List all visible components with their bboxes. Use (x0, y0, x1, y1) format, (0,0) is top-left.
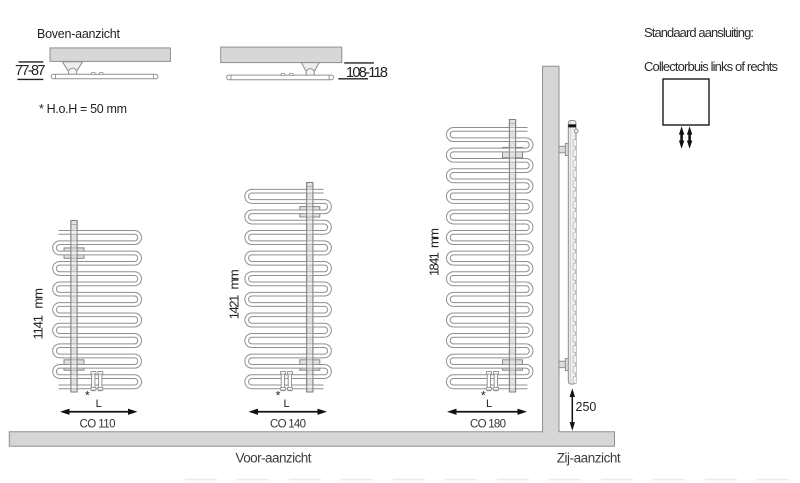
svg-text:Standaard aansluiting:: Standaard aansluiting: (644, 25, 754, 40)
svg-text:CO 140: CO 140 (270, 418, 306, 430)
svg-text:Boven-aanzicht: Boven-aanzicht (37, 27, 121, 41)
svg-text:1141 mm: 1141 mm (30, 288, 45, 340)
svg-text:Collectorbuis links of rechts: Collectorbuis links of rechts (644, 59, 779, 74)
svg-text:L: L (486, 398, 492, 410)
svg-text:L: L (283, 398, 289, 410)
svg-text:77-87: 77-87 (15, 63, 46, 79)
svg-text:Zij-aanzicht: Zij-aanzicht (557, 450, 621, 465)
svg-text:*: * (276, 389, 281, 403)
svg-text:Voor-aanzicht: Voor-aanzicht (236, 450, 312, 465)
svg-text:1841 mm: 1841 mm (427, 228, 442, 276)
svg-text:* H.o.H = 50 mm: * H.o.H = 50 mm (39, 102, 127, 116)
svg-text:250: 250 (576, 400, 597, 414)
svg-text:108-118: 108-118 (346, 65, 388, 81)
svg-text:CO 110: CO 110 (80, 418, 116, 430)
svg-text:L: L (96, 398, 102, 410)
svg-text:*: * (85, 389, 90, 403)
svg-text:CO 180: CO 180 (470, 418, 506, 430)
svg-text:1421 mm: 1421 mm (227, 269, 242, 319)
